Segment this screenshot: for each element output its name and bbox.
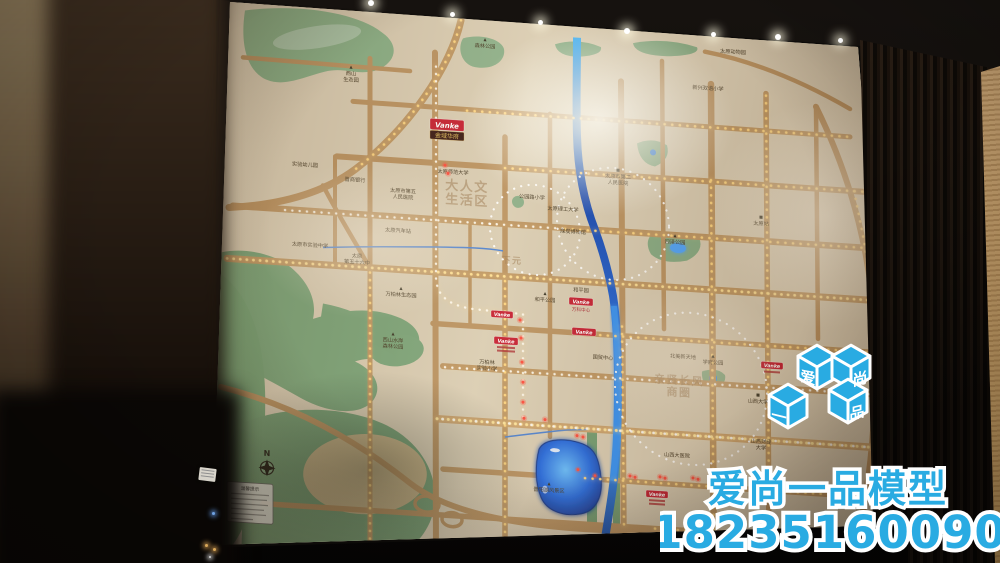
vanke-project-name: 金域华府	[435, 131, 459, 141]
poi-icon: ■	[616, 167, 620, 172]
vanke-logo-text: Vanke	[435, 121, 459, 131]
cube-char: 一	[772, 406, 787, 427]
compass-north-label: N	[264, 449, 271, 458]
poi-label: 万柏林实验小学	[477, 357, 498, 373]
lake	[536, 438, 601, 516]
blue-led	[212, 512, 215, 515]
watermark-phone-number: 18235160090	[660, 506, 1000, 559]
amber-led	[205, 544, 208, 547]
vanke-logo-text: Vanke	[576, 329, 594, 336]
vanke-logo-text: Vanke	[573, 299, 591, 306]
white-led	[209, 556, 211, 558]
watermark-brand-text: 爱尚一品模型	[708, 467, 948, 511]
watermark: 爱 尚 一 品 爱尚一品模型 18235160090	[660, 310, 1000, 563]
ceiling-spotlight	[368, 0, 374, 6]
vanke-logo-text: Vanke	[498, 338, 516, 345]
cube-char: 尚	[853, 368, 868, 389]
vanke-logo-text: Vanke	[494, 312, 511, 319]
ceiling-spotlight	[538, 20, 543, 25]
ceiling-spotlight	[624, 28, 630, 34]
vanke-project-marker: Vanke	[572, 327, 596, 336]
poi-icon: ■	[759, 214, 763, 219]
poi-label: 西山水岸森林公园	[383, 335, 404, 351]
vanke-project-marker: Vanke	[491, 310, 513, 319]
ceiling-spotlight	[838, 38, 843, 43]
amber-led	[213, 548, 216, 551]
cube-char: 品	[850, 402, 865, 423]
vanke-project-marker: Vanke金域华府	[430, 118, 464, 141]
photo-of-illuminated-city-map-board: N 温馨提示 大人文生活区亲贤长风商圈下元 ▲西山生态园实验幼儿园	[0, 0, 1000, 563]
cube-char: 爱	[801, 367, 816, 388]
ceiling-spotlight	[711, 32, 716, 37]
ceiling-spotlight	[450, 12, 455, 17]
small-sticker-label	[198, 467, 216, 482]
district-ghost-label: 下元	[502, 255, 523, 267]
district-ghost-label: 大人文生活区	[445, 177, 488, 210]
ceiling-spotlight	[775, 34, 781, 40]
